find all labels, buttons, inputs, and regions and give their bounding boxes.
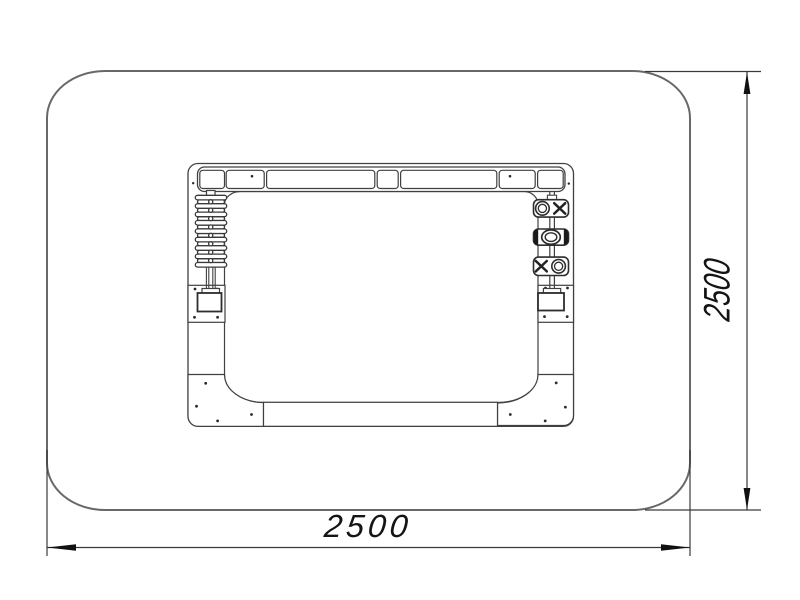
svg-text:2500: 2500 — [322, 508, 414, 544]
svg-text:2500: 2500 — [696, 256, 738, 324]
